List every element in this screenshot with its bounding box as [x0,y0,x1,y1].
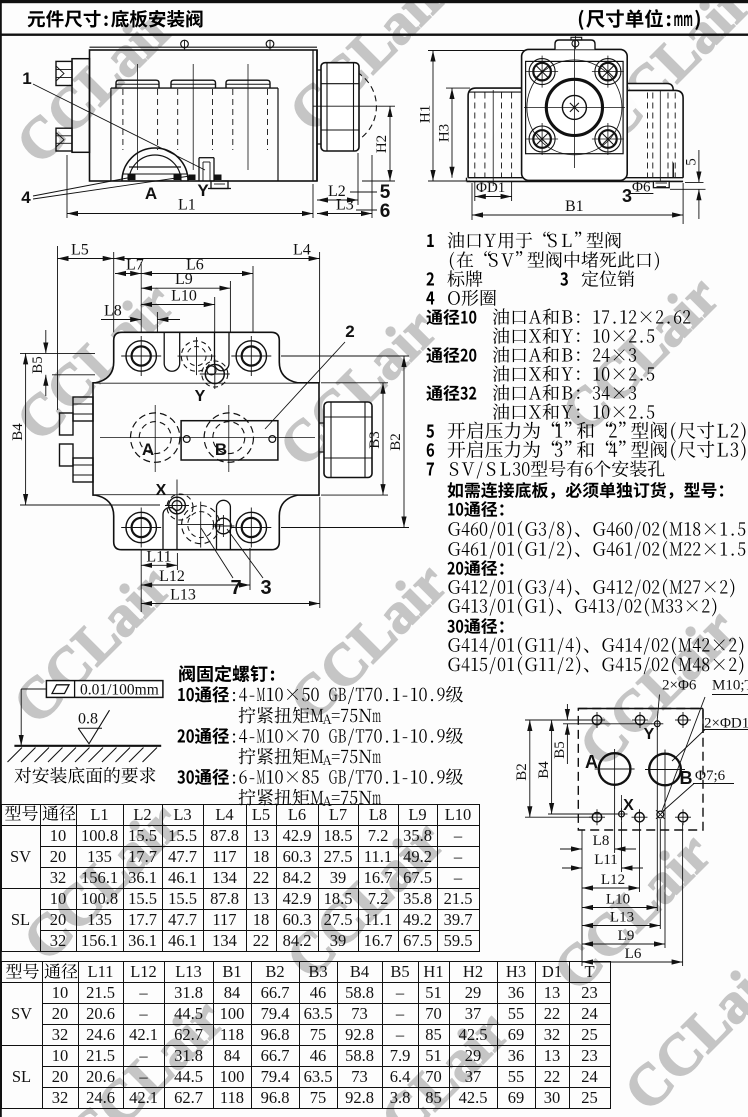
svg-text:ΦD1: ΦD1 [476,180,505,196]
svg-text:A: A [145,184,157,203]
svg-text:Y: Y [197,181,209,200]
svg-text:Y: Y [644,726,655,743]
svg-text:H2: H2 [374,135,390,153]
svg-text:L10: L10 [171,288,197,305]
svg-text:Y: Y [195,388,206,405]
svg-text:L11: L11 [146,549,171,566]
svg-text:X: X [156,482,167,499]
svg-text:5: 5 [380,182,391,203]
svg-text:0.01/100mm: 0.01/100mm [80,682,159,699]
svg-text:X: X [623,797,634,814]
svg-text:3: 3 [622,186,632,206]
svg-text:A: A [585,752,598,772]
svg-text:B1: B1 [565,198,584,215]
svg-text:B2: B2 [514,763,530,781]
svg-text:Φ7;6: Φ7;6 [695,768,726,784]
svg-text:1: 1 [22,69,31,88]
svg-text:L9: L9 [618,928,635,944]
svg-text:B4: B4 [536,761,552,779]
svg-text:L12: L12 [159,568,185,585]
svg-text:L1: L1 [178,197,196,214]
svg-text:L6: L6 [625,946,642,962]
svg-text:2×Φ6: 2×Φ6 [662,678,697,694]
svg-text:3: 3 [260,577,271,599]
svg-text:B5: B5 [30,356,46,374]
svg-text:B4: B4 [10,423,26,441]
svg-text:M10;T: M10;T [712,678,748,694]
svg-text:L4: L4 [293,242,311,259]
svg-text:B3: B3 [367,431,383,449]
svg-text:0.8: 0.8 [78,711,98,728]
svg-text:L8: L8 [104,303,122,320]
svg-text:H3: H3 [437,124,453,142]
svg-text:B5: B5 [552,741,568,759]
svg-text:B: B [680,768,693,788]
svg-text:A: A [142,440,154,459]
svg-text:L12: L12 [601,872,625,888]
svg-text:H1: H1 [418,105,434,123]
svg-text:4: 4 [21,188,31,207]
svg-text:L13: L13 [610,910,634,926]
svg-text:L9: L9 [175,271,193,288]
svg-text:B: B [215,440,227,459]
svg-text:6: 6 [380,201,391,222]
svg-text:L11: L11 [594,852,618,868]
svg-text:L3: L3 [336,197,354,214]
svg-text:7: 7 [230,577,241,599]
svg-text:L5: L5 [71,242,89,259]
svg-text:L13: L13 [170,587,196,604]
svg-text:L10: L10 [606,892,630,908]
svg-text:5: 5 [684,158,700,166]
svg-text:L8: L8 [593,833,610,849]
svg-text:B2: B2 [388,433,404,451]
svg-text:2: 2 [345,322,354,341]
